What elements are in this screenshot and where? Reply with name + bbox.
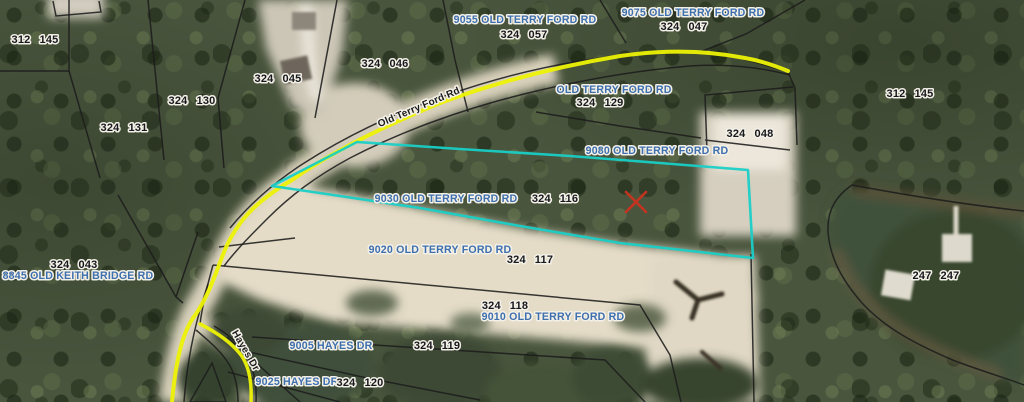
address-label: 9005 HAYES DR	[290, 340, 373, 352]
parcel-id-label: 324130	[169, 95, 216, 107]
x-location-marker	[626, 192, 646, 212]
building-roof-2	[292, 12, 316, 30]
parcel-id-label: 324129	[577, 97, 624, 109]
address-label: 9010 OLD TERRY FORD RD	[482, 311, 625, 323]
address-label: 9075 OLD TERRY FORD RD	[622, 7, 765, 19]
address-label: 9080 OLD TERRY FORD RD	[586, 145, 729, 157]
parcel-id-label: 312145	[12, 34, 59, 46]
parcel-id-label: 312145	[887, 88, 934, 100]
boat-dock-2	[881, 270, 915, 301]
address-label: 9025 HAYES DR	[256, 376, 339, 388]
address-label: 9055 OLD TERRY FORD RD	[454, 14, 597, 26]
lake-water	[828, 188, 1024, 384]
parcel-id-label: 324131	[101, 122, 148, 134]
boat-dock-platform	[942, 234, 972, 262]
parcel-id-label: 324046	[362, 58, 409, 70]
address-label: 9030 OLD TERRY FORD RD	[375, 193, 518, 205]
address-label: 8845 OLD KEITH BRIDGE RD	[3, 270, 154, 282]
map-canvas[interactable]: 9055 OLD TERRY FORD RD 9075 OLD TERRY FO…	[0, 0, 1024, 402]
parcel-id-label: 324057	[501, 29, 548, 41]
parcel-map-overlay: 9055 OLD TERRY FORD RD 9075 OLD TERRY FO…	[0, 0, 1024, 402]
parcel-id-label: 324116	[532, 193, 578, 205]
address-label: 9020 OLD TERRY FORD RD	[369, 244, 512, 256]
parcel-id-label: 324047	[661, 21, 708, 33]
address-label: OLD TERRY FORD RD	[556, 84, 671, 96]
